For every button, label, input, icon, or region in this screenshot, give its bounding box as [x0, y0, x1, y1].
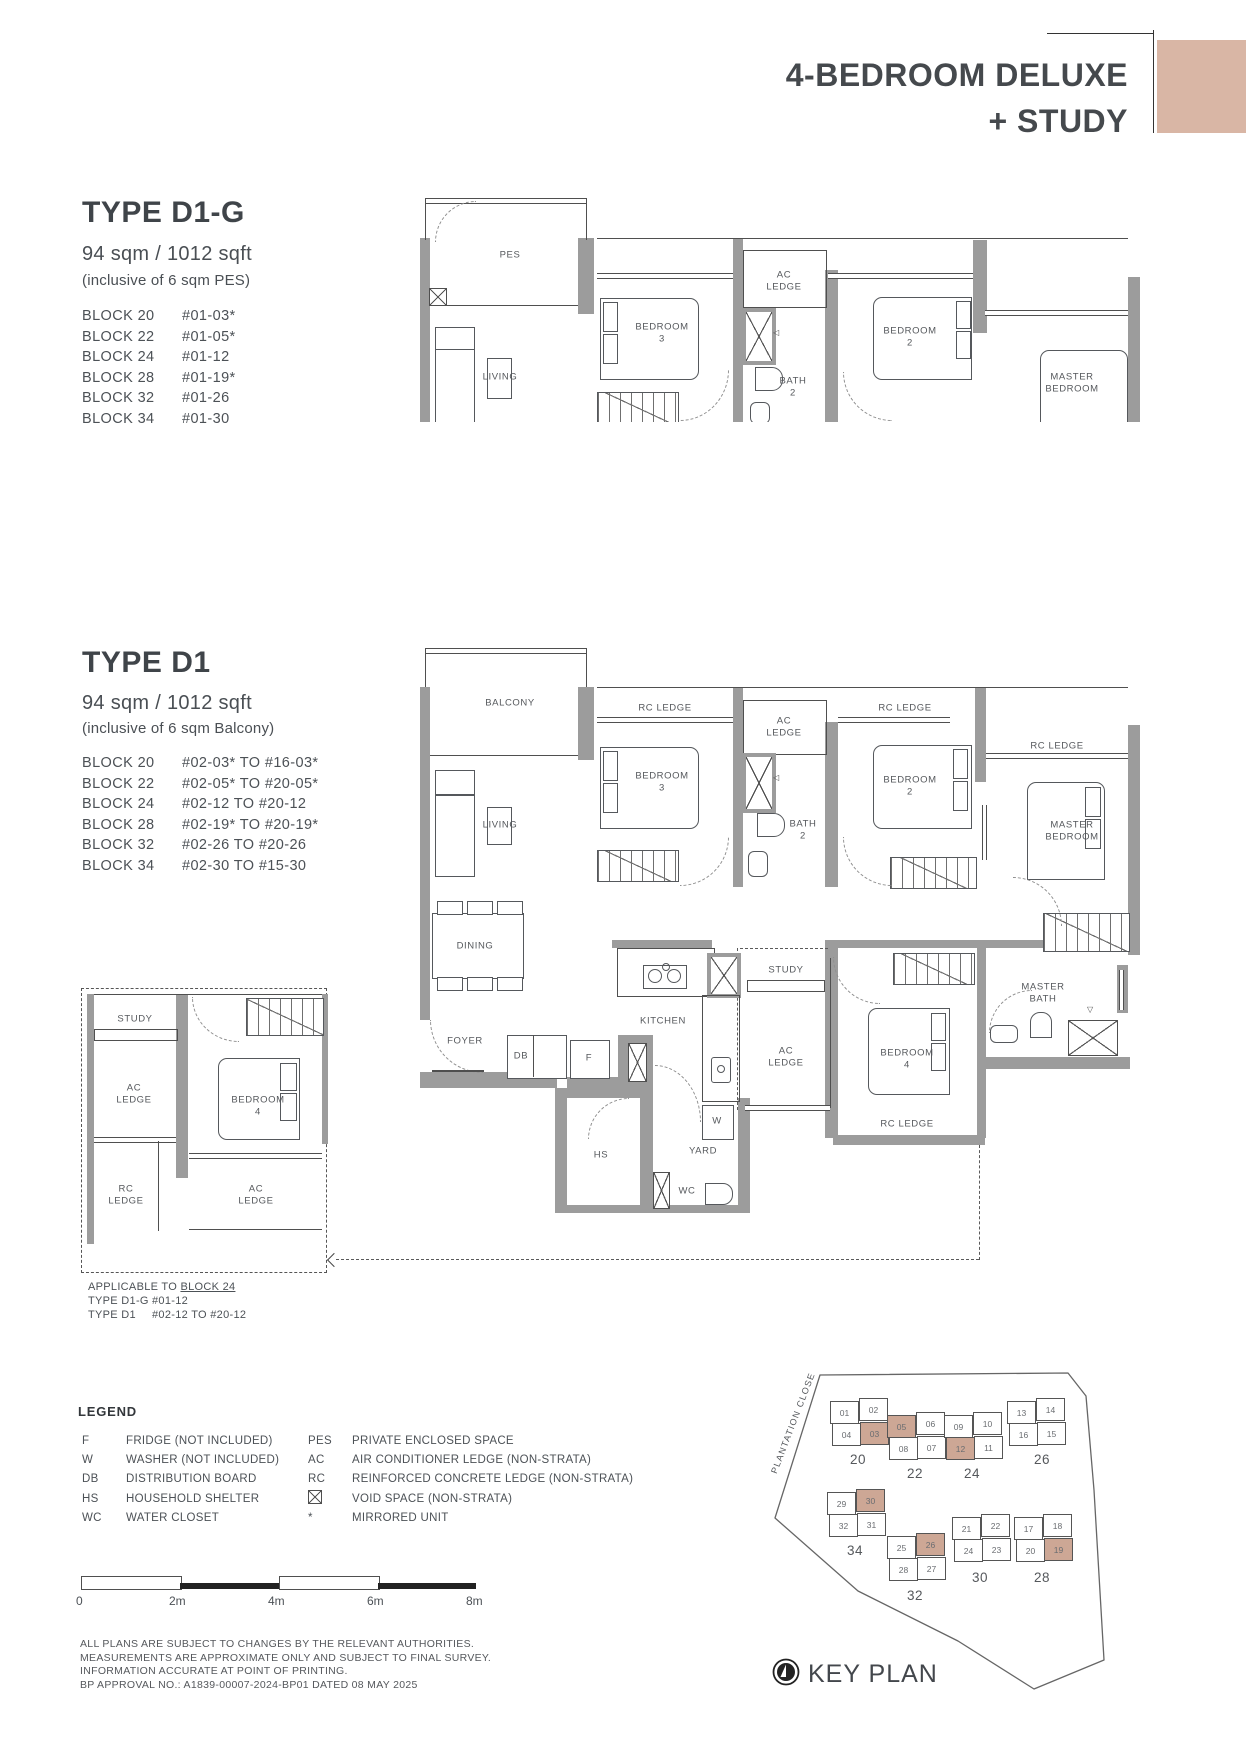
wall: [555, 1088, 567, 1210]
type-d1g-note: (inclusive of 6 sqm PES): [82, 272, 250, 289]
pillow-icon: [603, 334, 618, 364]
block-row: BLOCK 28#02-19* TO #20-19*: [82, 815, 318, 836]
room-label-living: LIVING: [483, 371, 518, 383]
bedroom3-window: [597, 273, 733, 279]
legend-row: *MIRRORED UNIT: [308, 1509, 633, 1528]
sink-icon: [748, 851, 768, 877]
inset-note-row: TYPE D1-G#01-12: [88, 1294, 246, 1308]
keyplan-unit: 24: [954, 1539, 983, 1562]
chair-icon: [437, 901, 463, 915]
legend-row: WCWATER CLOSET: [82, 1509, 279, 1528]
keyplan-cluster-26: 13 14 16 15: [1007, 1398, 1067, 1446]
room-label-bedroom2: BEDROOM 2: [883, 326, 936, 349]
keyplan-unit: 18: [1043, 1514, 1072, 1537]
wardrobe-icon: [597, 392, 679, 422]
room-label-bedroom3: BEDROOM 3: [635, 771, 688, 794]
keyplan-unit: 29: [827, 1492, 856, 1515]
room-label-rc-ledge: RC LEDGE: [880, 1118, 933, 1130]
top-boundary-line: [597, 687, 1128, 688]
void-space-icon: [628, 1043, 647, 1082]
wall: [977, 948, 986, 1138]
inset-note-block: BLOCK 24: [180, 1281, 235, 1293]
connector-dashed-line: [336, 1259, 979, 1260]
keyplan-unit: 31: [857, 1513, 886, 1536]
scale-label: 0: [76, 1594, 83, 1608]
door-arc: [588, 1098, 629, 1139]
pillow-icon: [1085, 787, 1101, 817]
void-space-icon: [742, 753, 776, 813]
keyplan-unit: 21: [952, 1517, 981, 1540]
keyplan-unit: 13: [1007, 1401, 1036, 1424]
toilet-icon: [757, 813, 785, 837]
room-label-ac-ledge: AC LEDGE: [116, 1083, 151, 1106]
luggage-rack-icon: [890, 857, 977, 889]
keyplan-unit: 14: [1036, 1398, 1065, 1421]
disclaimer-line: ALL PLANS ARE SUBJECT TO CHANGES BY THE …: [80, 1638, 491, 1652]
wall: [973, 240, 987, 333]
room-label-ac-ledge: AC LEDGE: [238, 1184, 273, 1207]
disclaimer: ALL PLANS ARE SUBJECT TO CHANGES BY THE …: [80, 1638, 491, 1692]
block-row: BLOCK 28#01-19*: [82, 368, 236, 389]
pillow-icon: [953, 749, 968, 779]
stove-burner-icon: [648, 969, 662, 983]
keyplan-cluster-24: 09 10 12 11: [944, 1412, 1004, 1460]
room-label-ac-ledge: AC LEDGE: [768, 1046, 803, 1069]
block-row: BLOCK 22#01-05*: [82, 327, 236, 348]
legend-right-column: PESPRIVATE ENCLOSED SPACE ACAIR CONDITIO…: [308, 1432, 633, 1528]
scale-segment: [81, 1576, 182, 1590]
sofa-icon: [435, 327, 475, 422]
disclaimer-line: INFORMATION ACCURATE AT POINT OF PRINTIN…: [80, 1665, 491, 1679]
block-row: BLOCK 24#02-12 TO #20-12: [82, 794, 318, 815]
top-boundary-line: [597, 238, 1128, 239]
room-label-bedroom4: BEDROOM 4: [880, 1048, 933, 1071]
db-divider-line: [533, 1035, 534, 1077]
keyplan-unit: 01: [830, 1401, 859, 1424]
room-label-dining: DINING: [457, 940, 494, 952]
room-label-kitchen: KITCHEN: [640, 1015, 686, 1027]
keyplan-cluster-34: 29 30 32 31: [827, 1489, 887, 1537]
void-marker-icon: ◁: [773, 773, 779, 782]
balcony-railing: [425, 648, 587, 654]
scale-segment: [279, 1576, 380, 1590]
stove-burner-icon: [667, 969, 681, 983]
door-arc: [680, 837, 729, 886]
wall: [985, 1057, 1130, 1069]
room-label-yard: YARD: [689, 1145, 717, 1157]
wall: [420, 308, 430, 422]
north-compass-icon: [772, 1658, 800, 1686]
wall: [578, 687, 594, 760]
room-label-master-bedroom: MASTER BEDROOM: [1045, 372, 1098, 395]
connector-dashed-line: [979, 1145, 980, 1260]
ac-ledge-line: [94, 1137, 176, 1143]
block-row: BLOCK 32#01-26: [82, 388, 236, 409]
shower-icon: [1068, 1020, 1118, 1056]
room-label-rc-ledge: RC LEDGE: [878, 702, 931, 714]
sink-icon: [750, 402, 770, 422]
door-leaf: [432, 1070, 484, 1072]
pillow-icon: [603, 302, 618, 332]
block-row: BLOCK 34#02-30 TO #15-30: [82, 856, 318, 877]
door-arc: [1013, 877, 1062, 926]
keyplan-block-label: 20: [828, 1452, 888, 1467]
ac-ledge-line: [189, 1153, 322, 1159]
bedroom2-window: [828, 273, 973, 279]
keyplan-unit-highlighted: 30: [856, 1489, 885, 1512]
door-arc: [192, 997, 239, 1042]
keyplan-unit: 25: [887, 1536, 916, 1559]
keyplan-unit-highlighted: 12: [946, 1437, 975, 1460]
keyplan-cluster-32: 25 26 28 27: [887, 1533, 947, 1581]
study-desk-icon: [747, 980, 825, 992]
scale-label: 6m: [367, 1594, 384, 1608]
legend-row: PESPRIVATE ENCLOSED SPACE: [308, 1432, 633, 1451]
keyplan-cluster-30: 21 22 24 23: [952, 1514, 1012, 1562]
keyplan-cluster-28: 17 18 20 19: [1014, 1514, 1074, 1562]
keyplan-unit: 09: [944, 1415, 973, 1438]
keyplan-unit-highlighted: 03: [860, 1422, 889, 1445]
keyplan-unit-highlighted: 26: [916, 1533, 945, 1556]
chair-icon: [467, 901, 493, 915]
legend-row: ACAIR CONDITIONER LEDGE (NON-STRATA): [308, 1451, 633, 1470]
void-space-icon: [707, 953, 741, 998]
master-bath-window: [1119, 970, 1124, 1010]
room-label-fridge: F: [586, 1052, 592, 1064]
door-arc: [680, 370, 729, 421]
pillow-icon: [956, 331, 971, 359]
balcony-door-line: [430, 755, 578, 756]
room-label-rc-ledge: RC LEDGE: [1030, 740, 1083, 752]
keyplan-block-label: 34: [825, 1543, 885, 1558]
wall: [833, 1135, 985, 1145]
room-label-bath2: BATH 2: [789, 819, 816, 842]
block-row: BLOCK 34#01-30: [82, 409, 236, 430]
block-row: BLOCK 20#01-03*: [82, 306, 236, 327]
room-label-rc-ledge: RC LEDGE: [108, 1184, 143, 1207]
keyplan-unit: 10: [973, 1412, 1002, 1435]
keyplan-unit: 16: [1009, 1423, 1038, 1446]
rc-ledge-line: [986, 753, 1128, 759]
boundary-line: [425, 648, 426, 687]
keyplan-unit: 15: [1037, 1422, 1066, 1445]
chair-icon: [467, 977, 493, 991]
wall: [640, 1098, 653, 1210]
room-label-wc: WC: [678, 1185, 695, 1197]
keyplan-unit: 32: [829, 1514, 858, 1537]
room-label-db: DB: [514, 1050, 528, 1062]
legend-row: WWASHER (NOT INCLUDED): [82, 1451, 279, 1470]
void-space-icon: [653, 1172, 670, 1209]
legend-row: DBDISTRIBUTION BOARD: [82, 1470, 279, 1489]
scale-label: 4m: [268, 1594, 285, 1608]
room-label-ac-ledge: AC LEDGE: [766, 270, 801, 293]
kitchen-sink-drain-icon: [717, 1065, 725, 1073]
wall: [87, 994, 94, 1244]
pillow-icon: [603, 751, 618, 781]
room-label-pes: PES: [500, 249, 521, 261]
disclaimer-line: BP APPROVAL NO.: A1839-00007-2024-BP01 D…: [80, 1679, 491, 1693]
toilet-icon: [1030, 1012, 1052, 1038]
keyplan-unit: 06: [916, 1412, 945, 1435]
keyplan-caption: KEY PLAN: [808, 1660, 938, 1689]
door-arc: [833, 957, 880, 1004]
study-desk-icon: [94, 1029, 178, 1041]
legend-left-column: FFRIDGE (NOT INCLUDED) WWASHER (NOT INCL…: [82, 1432, 279, 1528]
rc-ledge-line: [838, 717, 950, 723]
inset-note-line1: APPLICABLE TO BLOCK 24: [88, 1280, 246, 1294]
legend-row: VOID SPACE (NON-STRATA): [308, 1490, 633, 1509]
keyplan-unit: 02: [859, 1398, 888, 1421]
legend-row: FFRIDGE (NOT INCLUDED): [82, 1432, 279, 1451]
legend-row: HSHOUSEHOLD SHELTER: [82, 1490, 279, 1509]
rc-ledge-line: [597, 717, 733, 723]
inset-note: APPLICABLE TO BLOCK 24 TYPE D1-G#01-12 T…: [88, 1280, 246, 1322]
chair-icon: [497, 901, 523, 915]
block-row: BLOCK 32#02-26 TO #20-26: [82, 835, 318, 856]
type-d1-block-list: BLOCK 20#02-03* TO #16-03* BLOCK 22#02-0…: [82, 753, 318, 877]
room-label-living: LIVING: [483, 819, 518, 831]
room-label-master-bedroom: MASTER BEDROOM: [1045, 820, 1098, 843]
room-label-foyer: FOYER: [447, 1035, 483, 1047]
scale-segment-filled: [180, 1583, 279, 1589]
type-d1-area: 94 sqm / 1012 sqft: [82, 692, 252, 715]
block-row: BLOCK 20#02-03* TO #16-03*: [82, 753, 318, 774]
header-rule-vertical: [1153, 30, 1154, 133]
rc-ledge-divider-line: [158, 1141, 159, 1231]
keyplan-block-label: 22: [885, 1466, 945, 1481]
keyplan-unit: 08: [889, 1437, 918, 1460]
keyplan-block-label: 28: [1012, 1570, 1072, 1585]
void-space-icon: [308, 1490, 322, 1504]
scale-segment-filled: [378, 1583, 476, 1589]
keyplan-unit-highlighted: 19: [1044, 1538, 1073, 1561]
keyplan-block-label: 30: [950, 1570, 1010, 1585]
floorplan-type-d1: ◁: [375, 565, 1145, 1215]
keyplan-unit: 07: [917, 1436, 946, 1459]
room-label-ac-ledge: AC LEDGE: [766, 716, 801, 739]
room-label-rc-ledge: RC LEDGE: [638, 702, 691, 714]
floorplan-page: 4-BEDROOM DELUXE + STUDY TYPE D1-G 94 sq…: [0, 0, 1246, 1763]
pillow-icon: [931, 1013, 946, 1041]
master-window: [985, 310, 1128, 316]
keyplan-unit-highlighted: 05: [887, 1415, 916, 1438]
void-space-icon: [429, 288, 447, 306]
wall: [1128, 277, 1140, 422]
legend-row: RCREINFORCED CONCRETE LEDGE (NON-STRATA): [308, 1470, 633, 1489]
keyplan-block-label: 32: [885, 1588, 945, 1603]
door-arc: [843, 372, 892, 421]
chair-icon: [497, 977, 523, 991]
legend-title: LEGEND: [78, 1404, 137, 1419]
floorplan-type-d1g: ◁ PES LIVING BEDROOM 3 AC LEDGE BATH 2 B…: [375, 170, 1145, 422]
room-label-study: STUDY: [117, 1013, 152, 1025]
pillow-icon: [956, 301, 971, 329]
page-title: 4-BEDROOM DELUXE + STUDY: [786, 52, 1128, 144]
room-label-bath2: BATH 2: [779, 376, 806, 399]
scale-label: 8m: [466, 1594, 483, 1608]
scale-bar: 0 2m 4m 6m 8m: [81, 1576, 477, 1608]
room-label-balcony: BALCONY: [485, 697, 535, 709]
keyplan-unit: 04: [832, 1423, 861, 1446]
ac-ledge-side-line: [830, 958, 831, 1108]
room-label-bedroom2: BEDROOM 2: [883, 775, 936, 798]
disclaimer-line: MEASUREMENTS ARE APPROXIMATE ONLY AND SU…: [80, 1652, 491, 1666]
boundary-line: [586, 648, 587, 687]
room-label-hs: HS: [594, 1149, 608, 1161]
keyplan-unit: 27: [917, 1557, 946, 1580]
room-label-washer: W: [712, 1115, 722, 1127]
room-label-bedroom4: BEDROOM 4: [231, 1095, 284, 1118]
wall: [176, 994, 188, 1178]
top-boundary-line: [94, 994, 322, 995]
boundary-line: [425, 198, 426, 240]
page-title-line1: 4-BEDROOM DELUXE: [786, 52, 1128, 98]
pes-door-line: [430, 305, 578, 306]
wall: [420, 687, 430, 915]
wall: [578, 238, 594, 314]
shower-drain-icon: ▽: [1087, 1005, 1093, 1014]
page-title-line2: + STUDY: [786, 98, 1128, 144]
void-space-icon: [742, 308, 776, 365]
sofa-icon: [435, 770, 475, 877]
wall: [975, 687, 986, 782]
pes-boundary-line: [425, 198, 587, 204]
boundary-line: [586, 198, 587, 240]
kitchen-counter: [702, 995, 740, 1102]
header-accent-block: [1157, 40, 1246, 133]
type-d1-note: (inclusive of 6 sqm Balcony): [82, 720, 274, 737]
keyplan-unit: 22: [981, 1514, 1010, 1537]
keyplan-unit: 11: [974, 1436, 1003, 1459]
scale-label: 2m: [169, 1594, 186, 1608]
wardrobe-icon: [597, 850, 679, 882]
master-window: [982, 805, 987, 860]
type-d1-title: TYPE D1: [82, 646, 211, 680]
pillow-icon: [953, 781, 968, 811]
door-arc: [435, 201, 476, 242]
ac-ledge-bottom-line: [189, 1229, 322, 1230]
chair-icon: [437, 977, 463, 991]
room-label-bedroom3: BEDROOM 3: [635, 322, 688, 345]
keyplan-cluster-20: 01 02 04 03: [830, 1398, 890, 1446]
type-d1g-block-list: BLOCK 20#01-03* BLOCK 22#01-05* BLOCK 24…: [82, 306, 236, 430]
door-arc: [843, 837, 892, 886]
wall: [420, 915, 430, 1020]
block-row: BLOCK 24#01-12: [82, 347, 236, 368]
pillow-icon: [280, 1063, 297, 1091]
pillow-icon: [603, 783, 618, 813]
inset-note-row: TYPE D1#02-12 TO #20-12: [88, 1308, 246, 1322]
floorplan-inset-block24: STUDY AC LEDGE BEDROOM 4 RC LEDGE AC LED…: [81, 988, 327, 1273]
keyplan-cluster-22: 05 06 08 07: [887, 1412, 947, 1460]
ac-ledge-line: [745, 1105, 830, 1111]
toilet-icon: [705, 1183, 733, 1205]
block-row: BLOCK 22#02-05* TO #20-05*: [82, 774, 318, 795]
wardrobe-icon: [246, 998, 324, 1036]
keyplan-block-label: 26: [1012, 1452, 1072, 1467]
strata-dashed-line: [740, 948, 828, 949]
keyplan-unit: 28: [889, 1558, 918, 1581]
keyplan-unit: 23: [982, 1538, 1011, 1561]
header-rule-horizontal: [1047, 33, 1153, 34]
wall: [612, 940, 712, 948]
keyplan-unit: 17: [1014, 1517, 1043, 1540]
void-marker-icon: ◁: [773, 328, 779, 337]
wardrobe-icon: [893, 953, 975, 985]
keyplan-block-label: 24: [942, 1466, 1002, 1481]
door-arc: [655, 1065, 701, 1122]
room-label-master-bath: MASTER BATH: [1021, 982, 1064, 1005]
wall: [738, 1098, 750, 1210]
type-d1g-title: TYPE D1-G: [82, 196, 245, 230]
keyplan-unit: 20: [1016, 1539, 1045, 1562]
connector-arrow-icon: [327, 1253, 341, 1267]
stove-burner-icon: [662, 963, 670, 971]
room-label-study: STUDY: [768, 964, 803, 976]
type-d1g-area: 94 sqm / 1012 sqft: [82, 243, 252, 266]
